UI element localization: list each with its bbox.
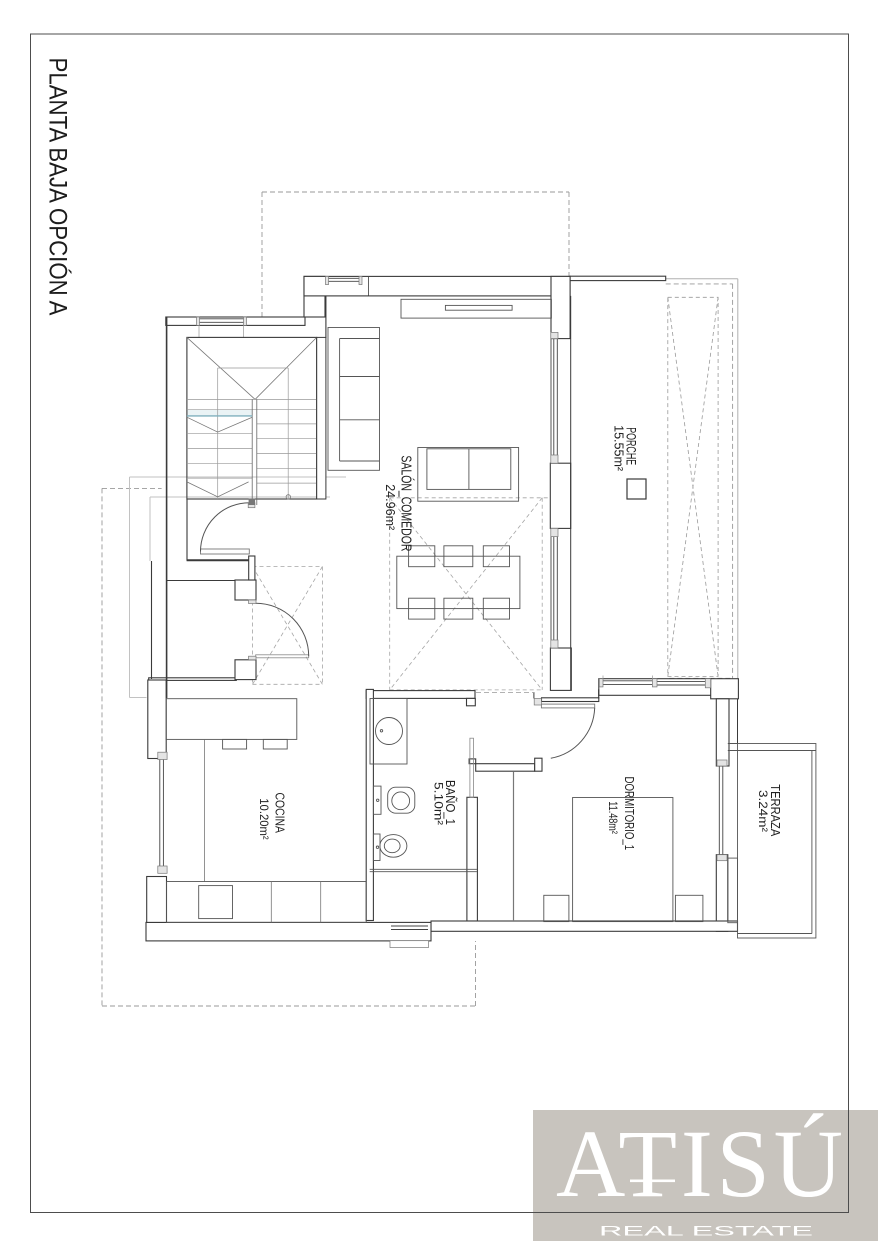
svg-text:ATISÚ: ATISÚ (556, 1110, 843, 1217)
svg-text:24.96m²: 24.96m² (383, 484, 398, 531)
svg-text:COCINA: COCINA (272, 793, 286, 834)
svg-text:15.55m²: 15.55m² (611, 425, 626, 472)
svg-text:11.48m²: 11.48m² (606, 801, 620, 834)
svg-text:REAL ESTATE: REAL ESTATE (599, 1223, 813, 1239)
svg-text:PLANTA BAJA OPCIÓN A: PLANTA BAJA OPCIÓN A (43, 58, 72, 316)
svg-text:DORMITORIO_1: DORMITORIO_1 (622, 777, 636, 851)
svg-text:SALÓN_COMEDOR: SALÓN_COMEDOR (397, 455, 414, 551)
svg-text:5.10m²: 5.10m² (431, 782, 445, 825)
svg-text:3.24m²: 3.24m² (756, 790, 770, 832)
svg-text:10.20m²: 10.20m² (257, 798, 271, 839)
